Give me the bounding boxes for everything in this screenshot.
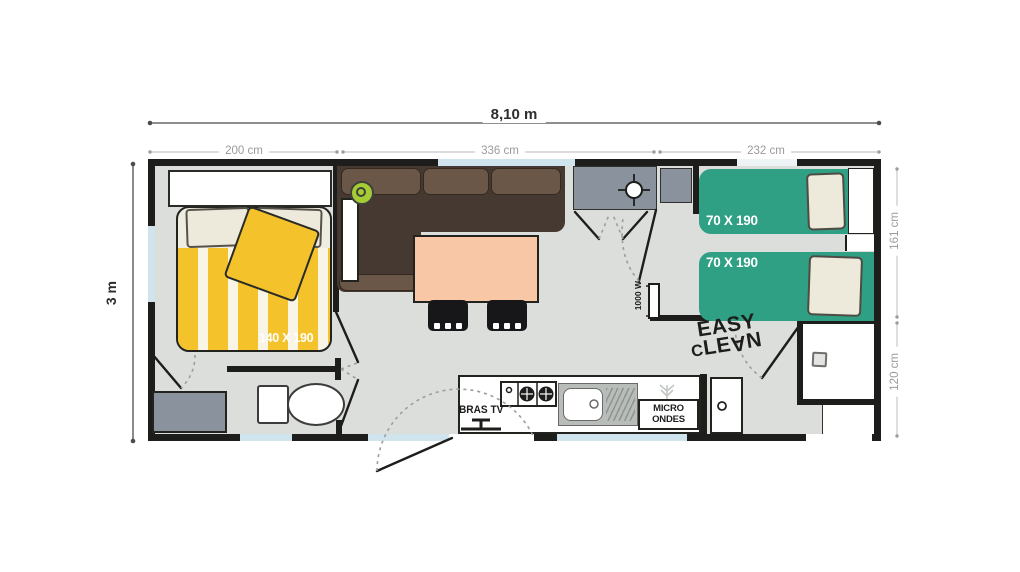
chair-foot — [433, 322, 441, 330]
wall-wc-post — [335, 358, 341, 380]
sofa-cushion-2 — [423, 168, 489, 195]
wall-wc-stub — [336, 420, 342, 434]
entrance-door-opening — [449, 434, 534, 441]
bathroom-cabinet — [822, 405, 874, 434]
chair-foot — [444, 322, 452, 330]
drain-icon — [812, 352, 828, 368]
window-wc-bottom — [240, 434, 292, 441]
window-kitchen-bottom — [557, 434, 687, 441]
dimension-total-height: 3 m — [103, 275, 119, 311]
window-bedroom1-left — [148, 226, 155, 302]
heater-power-label: 1000 W — [633, 281, 643, 310]
microwave-label-line2: ONDES — [640, 415, 697, 425]
master-bed-headboard — [168, 170, 332, 207]
chair-1 — [428, 300, 468, 331]
wall-heater-stub — [653, 283, 659, 319]
window-bedroom2-top — [737, 159, 797, 166]
microwave: MICRO ONDES — [638, 399, 699, 430]
chair-foot — [455, 322, 463, 330]
dimension-seg-336: 336 cm — [475, 145, 525, 157]
twin-bed-2-pillow — [807, 255, 863, 317]
chair-foot — [492, 322, 500, 330]
toilet-bowl — [287, 383, 345, 426]
tv-bracket-label: BRAS TV — [459, 404, 503, 416]
sink-basin — [563, 388, 603, 421]
dimension-seg-120: 120 cm — [889, 347, 901, 397]
dimension-seg-161: 161 cm — [889, 206, 901, 256]
wardrobe — [573, 166, 657, 210]
window-hall-bottom — [368, 434, 449, 441]
dimension-line-total-height — [131, 162, 136, 444]
toilet-tank — [257, 385, 289, 424]
plant-icon — [350, 181, 374, 205]
sofa-cushion-3 — [491, 168, 561, 195]
master-bed-size-label: 140 X 190 — [259, 331, 313, 345]
sofa-side-shelf — [341, 198, 359, 282]
window-living-top — [438, 159, 575, 166]
stove — [500, 381, 557, 407]
tall-cupboard-door — [710, 377, 743, 434]
between-beds-shelf — [845, 235, 874, 251]
closet-box — [660, 168, 692, 203]
twin-bed-1-pillow — [806, 172, 846, 230]
dimension-seg-232: 232 cm — [741, 145, 791, 157]
sink-drainer — [606, 388, 635, 421]
wall-kitchen-right — [700, 374, 707, 434]
twin-bed-2-size-label: 70 X 190 — [706, 255, 758, 270]
dimension-total-width: 8,10 m — [483, 106, 546, 123]
chair-foot — [514, 322, 522, 330]
floorplan-canvas: 140 X 190 70 X 190 70 X 190 1000 W BRAS … — [0, 0, 1020, 572]
twin-bed-1-size-label: 70 X 190 — [706, 213, 758, 228]
plant-inner-ring — [356, 187, 366, 197]
microwave-label-line1: MICRO — [640, 404, 697, 414]
wall-wc-top — [227, 366, 338, 372]
dining-table — [413, 235, 539, 303]
storage-cabinet — [152, 391, 227, 433]
dimension-seg-200: 200 cm — [219, 145, 269, 157]
chair-foot — [503, 322, 511, 330]
nightstand — [848, 168, 874, 234]
chair-2 — [487, 300, 527, 331]
entrance-door-leaf — [377, 438, 452, 471]
opening-under-shower — [806, 434, 872, 441]
kitchen-sink — [558, 383, 638, 426]
